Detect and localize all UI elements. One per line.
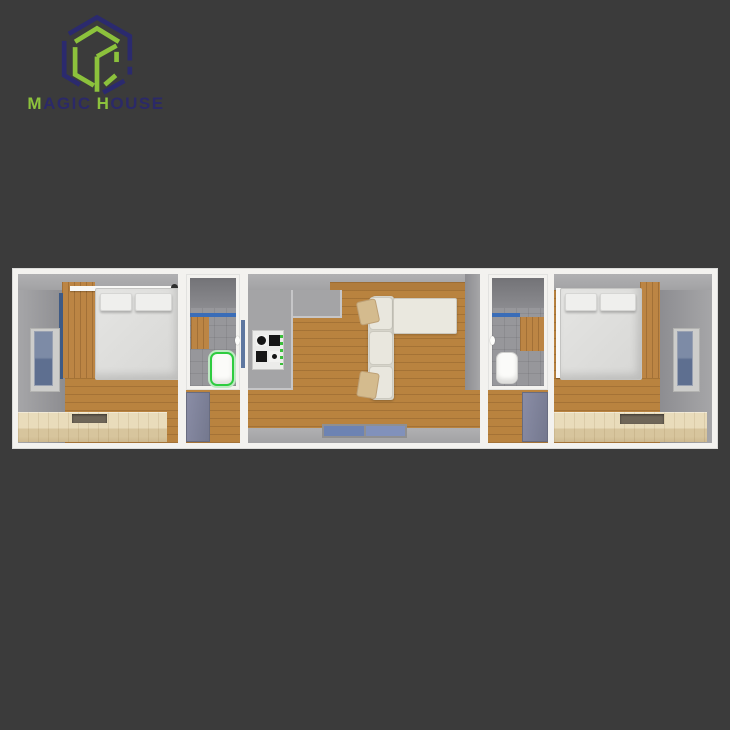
pillow [135,293,172,311]
burner-icon [256,335,267,346]
living-right-wall [465,274,480,390]
brand-logo: MAGICHOUSE [20,10,172,122]
bathroom-left-column [186,274,240,443]
bedroom-left [18,274,178,443]
pillow [100,293,132,311]
bathroom-right-back-wall [492,278,544,308]
bedroom-left-accent-wall [62,282,95,378]
bedroom-right-accent-wall [640,282,660,378]
platform-recess [72,414,107,423]
brand-word1-initial: M [27,94,43,113]
vanity-right [520,317,544,351]
toilet-right [496,352,518,384]
sofa-chaise [393,298,457,334]
window-right [673,328,700,392]
toilet-left-highlighted [210,352,234,386]
living-kitchen [248,274,480,443]
cooktop [252,330,284,370]
burner-icon [269,351,280,362]
window-glass [677,331,693,386]
platform-recess [620,414,664,424]
pillow [565,293,597,311]
living-top-wood-accent [330,282,465,290]
entry-mat [366,426,406,436]
burner-icon [269,335,280,346]
bathroom-left [186,274,240,390]
shower-strip-right [492,313,520,317]
burner-icon [256,351,267,362]
bathroom-right [488,274,548,390]
floorplan [12,268,718,449]
sofa-pillow [356,371,380,400]
brand-word2-initial: H [97,94,111,113]
bedroom-right [554,274,712,443]
sofa-cushion [369,331,393,364]
brand-word1-rest: AGIC [43,94,92,113]
door-knob-left [235,336,240,345]
brand-word2-rest: OUSE [110,94,164,113]
corridor-left-panel [186,392,210,442]
cooktop-leds [280,335,283,365]
bathroom-right-column [488,274,548,443]
pillow [600,293,636,311]
entry-mat [324,426,364,436]
entry-mats [322,424,407,438]
kitchen-wall-window [241,320,245,368]
window-glass [34,331,53,386]
corridor-right-panel [522,392,548,442]
vanity-left [191,317,209,349]
cube-logo-icon [56,12,138,98]
door-knob-right [490,336,495,345]
brand-name: MAGICHOUSE [20,94,172,114]
window-left [30,328,60,392]
bathroom-left-back-wall [190,278,236,308]
